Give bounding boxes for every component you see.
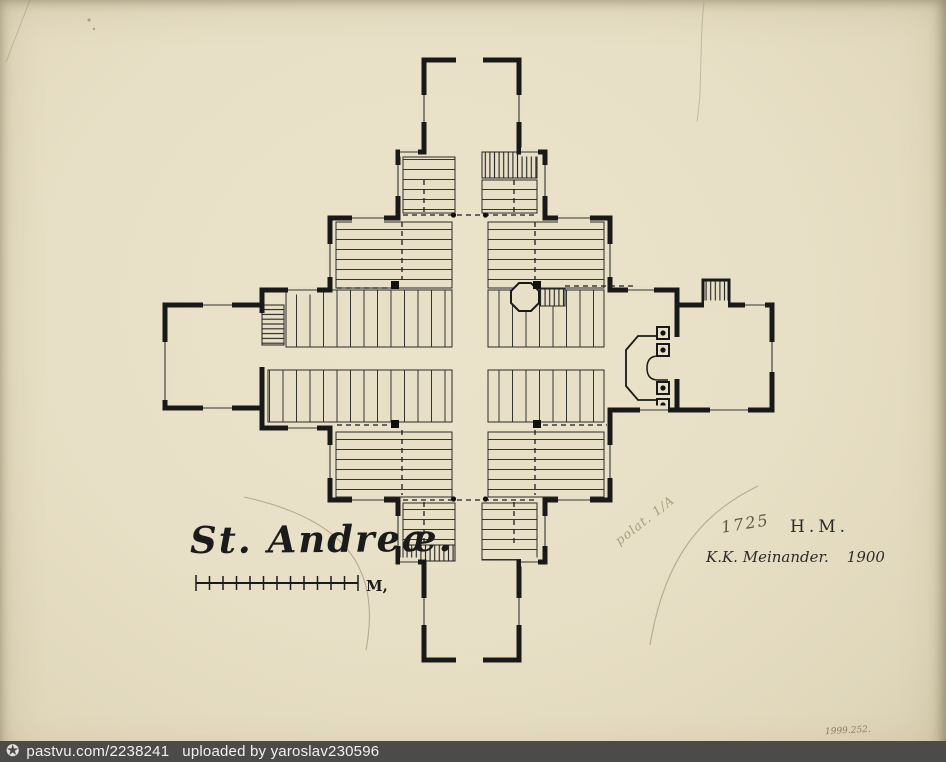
pew-block bbox=[482, 503, 537, 560]
stair-west-gallery bbox=[262, 305, 284, 345]
outer-walls bbox=[165, 60, 772, 660]
pew-block bbox=[488, 432, 604, 497]
altar bbox=[626, 327, 669, 411]
signature-name: K.K. Meinander. bbox=[706, 548, 829, 566]
scale-bar bbox=[196, 575, 358, 591]
stair-pulpit bbox=[540, 289, 565, 306]
footer-source-link[interactable]: pastvu.com/2238241 bbox=[26, 743, 169, 760]
footer-uploaded-by: uploaded by yaroslav230596 bbox=[182, 743, 379, 760]
pew-block bbox=[336, 222, 452, 288]
watermark-footer: ✪ pastvu.com/2238241 uploaded by yarosla… bbox=[0, 741, 946, 762]
pew-block bbox=[488, 370, 604, 422]
wall-openings bbox=[161, 56, 777, 665]
pew-block bbox=[488, 222, 604, 288]
scale-unit-label: M, bbox=[366, 577, 388, 595]
circled-star-icon: ✪ bbox=[6, 744, 19, 760]
initials-annotation: H.M. bbox=[790, 517, 849, 537]
pew-block bbox=[403, 157, 455, 213]
floor-plan: M, bbox=[0, 0, 946, 741]
paper-creases bbox=[6, 0, 704, 122]
scanned-floor-plan-sheet: M, St. Andreæ. 1725 H.M. K.K. Meinander.… bbox=[0, 0, 946, 762]
altar-table bbox=[647, 356, 668, 380]
pew-block bbox=[336, 432, 452, 497]
drawing-title: St. Andreæ. bbox=[190, 516, 454, 562]
pew-block bbox=[286, 290, 452, 347]
pew-block bbox=[268, 370, 452, 422]
signature: K.K. Meinander.1900 bbox=[706, 548, 885, 566]
signature-year: 1900 bbox=[847, 548, 885, 566]
pew-block bbox=[482, 180, 537, 213]
